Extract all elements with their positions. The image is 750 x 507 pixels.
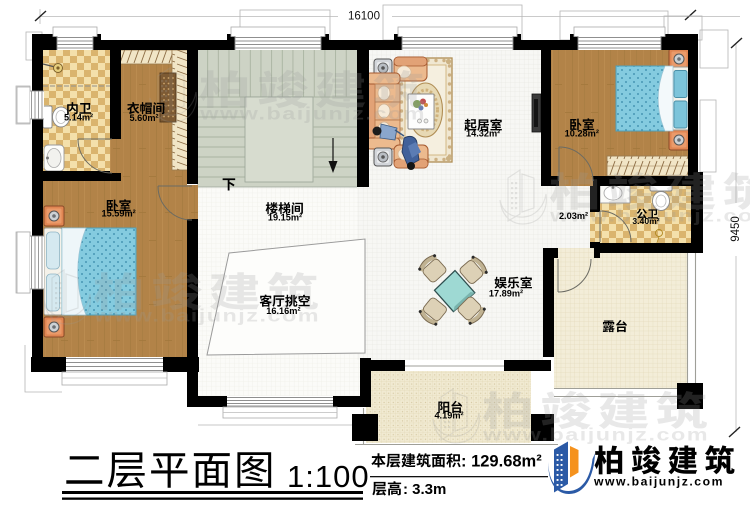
svg-text:2.03m²: 2.03m² [559, 211, 588, 221]
svg-text:www.baijunjz.com: www.baijunjz.com [482, 425, 709, 445]
svg-text:1:100: 1:100 [287, 459, 370, 494]
svg-text:: 3.3m: : 3.3m [403, 481, 446, 498]
svg-text:10.28m²: 10.28m² [565, 129, 599, 139]
svg-text:17.89m²: 17.89m² [489, 288, 523, 298]
svg-text:16100: 16100 [348, 10, 380, 22]
svg-text:16.16m²: 16.16m² [266, 306, 300, 316]
svg-text:4.19m²: 4.19m² [434, 410, 463, 420]
svg-text:3.40m²: 3.40m² [632, 216, 659, 226]
svg-text:www.baijunjz.com: www.baijunjz.com [199, 104, 426, 124]
svg-text:5.60m²: 5.60m² [129, 113, 158, 123]
svg-text:19.15m²: 19.15m² [268, 212, 302, 222]
svg-text:: 129.68m²: : 129.68m² [461, 453, 542, 471]
svg-text:15.59m²: 15.59m² [101, 208, 135, 218]
svg-text:14.32m²: 14.32m² [466, 129, 500, 139]
svg-text:www.baijunjz.com: www.baijunjz.com [593, 475, 724, 489]
svg-text:5.14m²: 5.14m² [64, 113, 93, 123]
